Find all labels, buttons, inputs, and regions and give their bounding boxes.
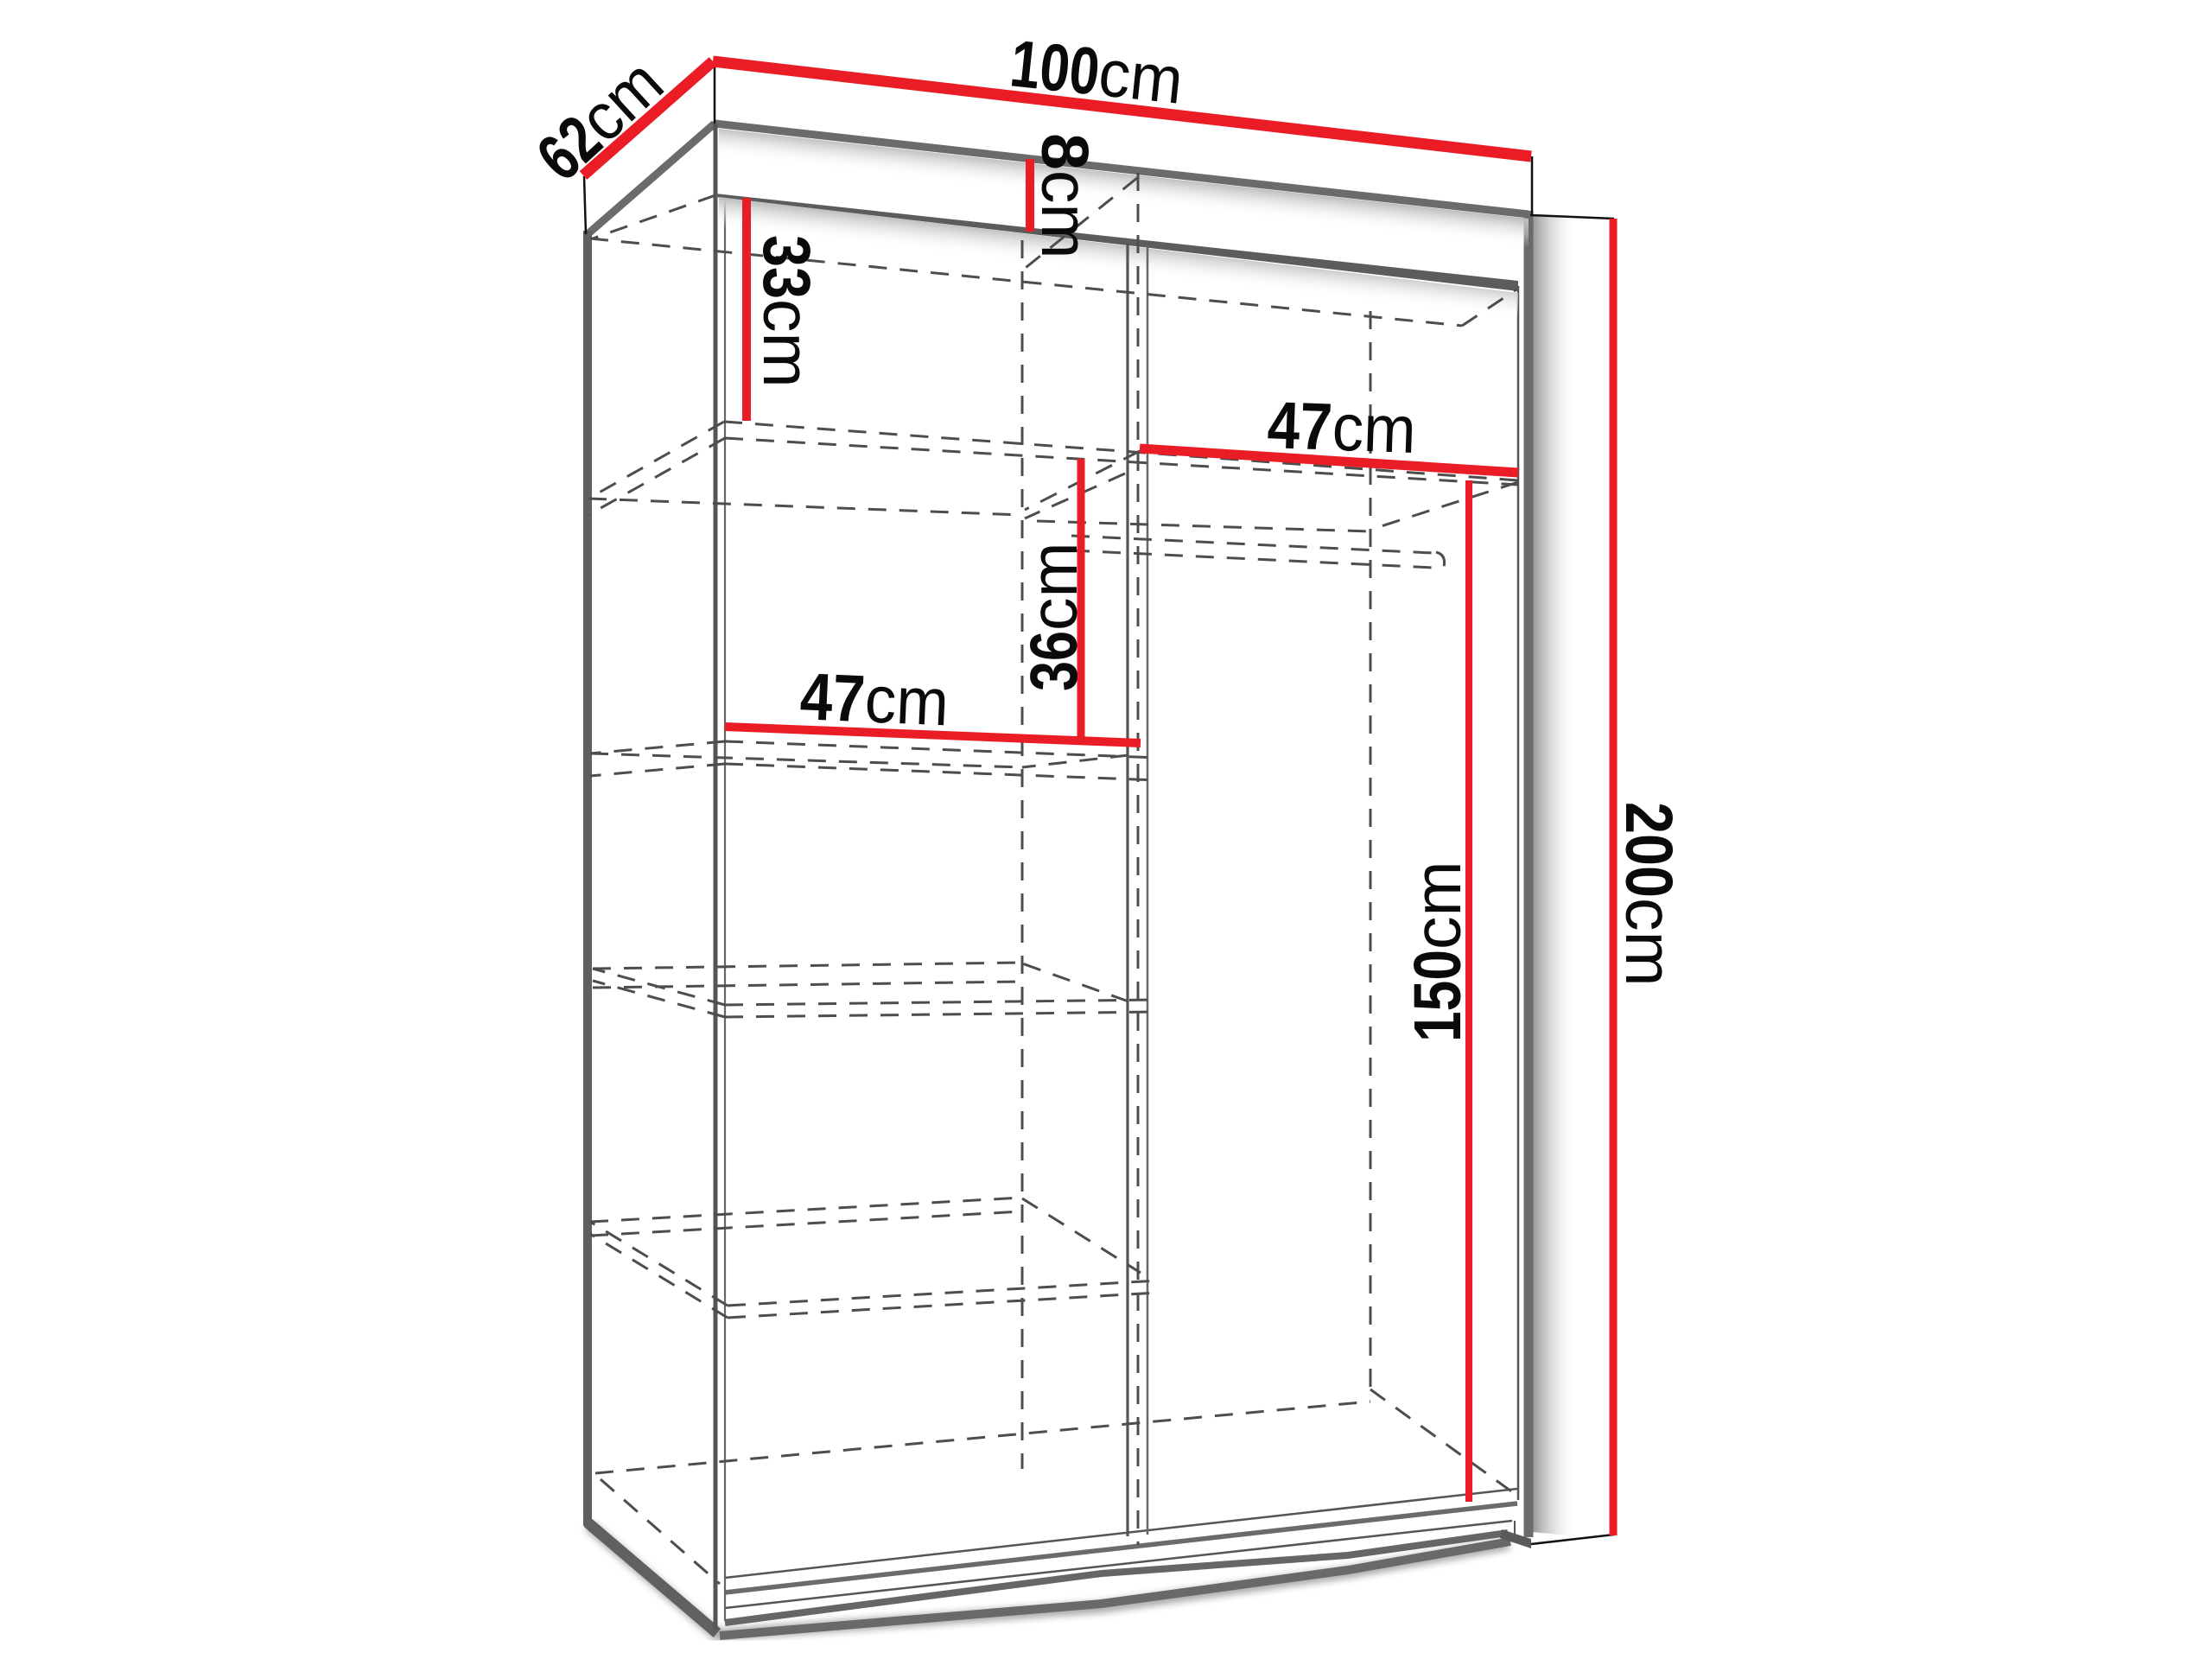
svg-text:200cm: 200cm	[1611, 802, 1686, 987]
svg-text:8cm: 8cm	[1027, 133, 1102, 258]
svg-text:36cm: 36cm	[1017, 542, 1091, 691]
svg-text:47cm: 47cm	[798, 659, 950, 740]
svg-text:150cm: 150cm	[1401, 861, 1475, 1042]
svg-text:100cm: 100cm	[1007, 26, 1186, 118]
svg-text:47cm: 47cm	[1266, 388, 1417, 467]
svg-text:33cm: 33cm	[749, 235, 823, 388]
